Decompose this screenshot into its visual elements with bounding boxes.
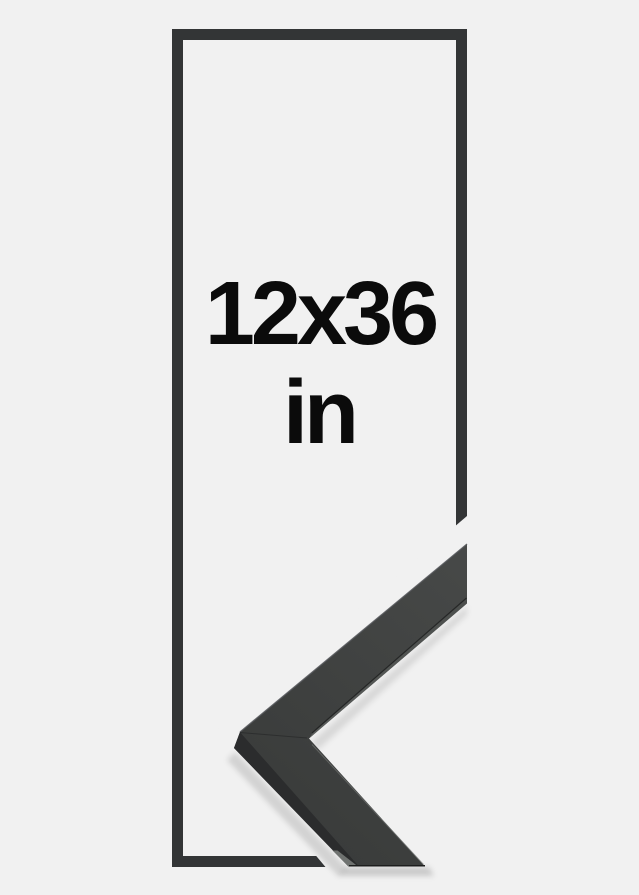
size-label: 12x36: [205, 264, 436, 364]
shadow-bottom: [338, 867, 434, 876]
unit-label: in: [283, 363, 355, 463]
frame-outline-top: [172, 29, 467, 40]
product-image[interactable]: 12x36 in: [0, 0, 639, 895]
frame-outline-left: [172, 29, 183, 867]
frame-size-diagram: 12x36 in: [0, 0, 639, 895]
